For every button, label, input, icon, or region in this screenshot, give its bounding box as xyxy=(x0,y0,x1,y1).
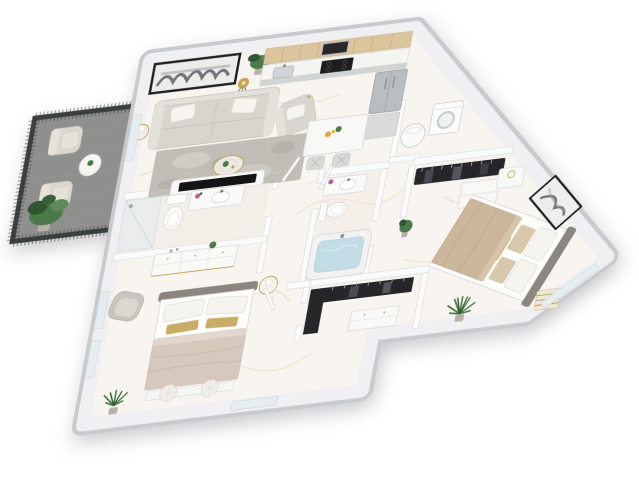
pillow xyxy=(205,296,248,315)
washer xyxy=(428,101,463,136)
floorplan-svg xyxy=(0,0,639,480)
nightstand xyxy=(496,166,525,189)
tall-cabinet xyxy=(364,112,400,139)
sofa-pillow xyxy=(230,98,258,113)
floorplan-render xyxy=(0,0,639,480)
apartment-plan xyxy=(0,0,639,441)
